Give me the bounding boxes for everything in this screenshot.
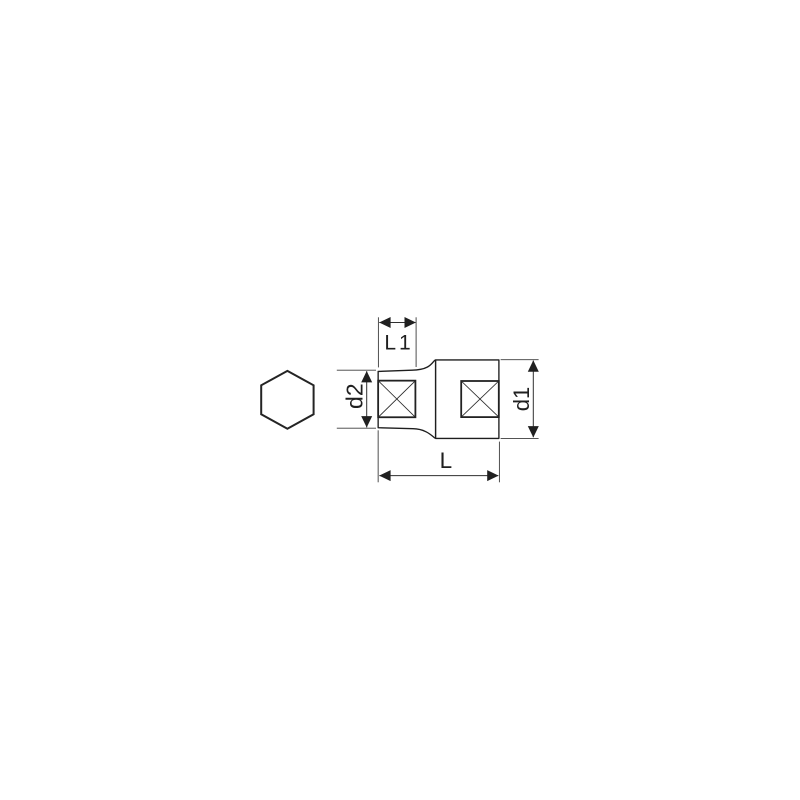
- svg-text:1: 1: [399, 331, 411, 354]
- svg-text:L: L: [440, 448, 453, 473]
- svg-text:d2: d2: [342, 383, 368, 409]
- svg-text:L: L: [384, 331, 396, 354]
- svg-text:d1: d1: [509, 387, 534, 411]
